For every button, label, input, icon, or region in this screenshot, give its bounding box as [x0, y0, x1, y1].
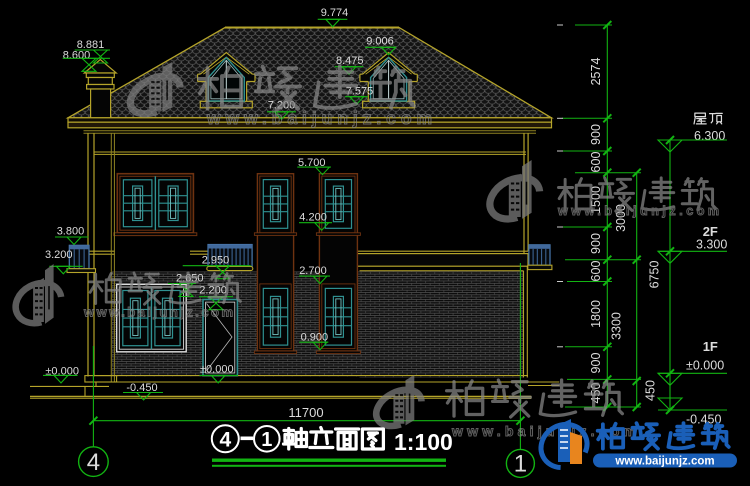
svg-text:www.baijunjz.com: www.baijunjz.com — [614, 455, 714, 467]
svg-text:6.300: 6.300 — [694, 129, 725, 143]
svg-text:900: 900 — [589, 353, 603, 374]
svg-text:900: 900 — [589, 124, 603, 145]
svg-text:1:100: 1:100 — [394, 429, 453, 455]
svg-text:±0.000: ±0.000 — [686, 359, 724, 373]
svg-text:1800: 1800 — [589, 300, 603, 328]
svg-text:4.200: 4.200 — [299, 211, 327, 223]
svg-text:11700: 11700 — [288, 405, 323, 420]
svg-text:2.950: 2.950 — [202, 254, 230, 266]
svg-text:±0.000: ±0.000 — [200, 364, 234, 376]
svg-text:3.800: 3.800 — [57, 226, 85, 238]
svg-text:450: 450 — [644, 380, 658, 401]
svg-text:4: 4 — [87, 449, 100, 476]
svg-text:3300: 3300 — [610, 312, 624, 340]
svg-text:600: 600 — [589, 261, 603, 282]
svg-text:3.300: 3.300 — [696, 238, 727, 252]
svg-text:2574: 2574 — [589, 58, 603, 86]
svg-text:9.006: 9.006 — [366, 35, 394, 47]
svg-text:www.baijunjz.com: www.baijunjz.com — [83, 305, 234, 320]
svg-text:2.200: 2.200 — [199, 284, 227, 296]
svg-text:900: 900 — [589, 233, 603, 254]
svg-text:1: 1 — [261, 429, 272, 451]
svg-text:1: 1 — [514, 451, 527, 478]
svg-text:1F: 1F — [703, 339, 718, 354]
svg-text:4: 4 — [219, 429, 231, 452]
svg-text:8.600: 8.600 — [63, 50, 91, 62]
svg-text:3.200: 3.200 — [45, 249, 73, 261]
svg-text:9.774: 9.774 — [321, 7, 349, 19]
svg-text:6750: 6750 — [648, 261, 662, 289]
svg-text:600: 600 — [589, 152, 603, 173]
svg-text:2.700: 2.700 — [299, 265, 327, 277]
